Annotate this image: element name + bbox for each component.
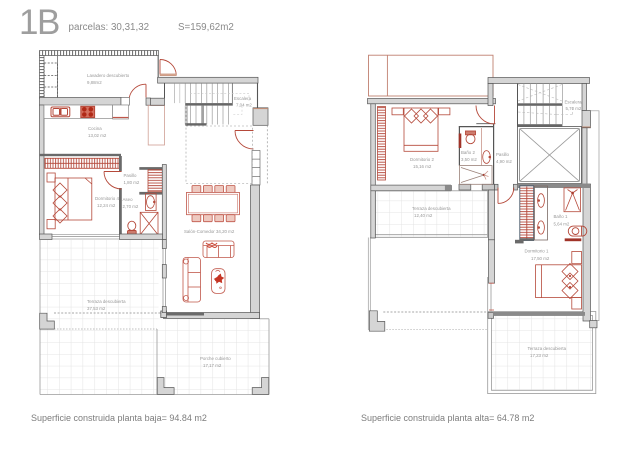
svg-text:Dormitorio 1: Dormitorio 1 <box>525 249 549 254</box>
svg-text:Salón-Comedor 34,20 m2: Salón-Comedor 34,20 m2 <box>184 229 235 234</box>
svg-text:17,17 m2: 17,17 m2 <box>203 363 222 368</box>
svg-text:Porche cubierto: Porche cubierto <box>200 356 231 361</box>
svg-text:3,50 m2: 3,50 m2 <box>461 157 477 162</box>
svg-text:Lavadero descubierto: Lavadero descubierto <box>87 73 130 78</box>
svg-text:13,02 m2: 13,02 m2 <box>88 133 107 138</box>
svg-text:12,40 m2: 12,40 m2 <box>414 213 433 218</box>
svg-text:9,88m2: 9,88m2 <box>87 80 102 85</box>
svg-text:15,16 m2: 15,16 m2 <box>413 164 432 169</box>
svg-text:Pasillo: Pasillo <box>124 173 137 178</box>
svg-text:17,23 m2: 17,23 m2 <box>530 353 549 358</box>
svg-text:7,04 m2: 7,04 m2 <box>236 103 252 108</box>
svg-text:5,64 m2: 5,64 m2 <box>554 222 570 227</box>
svg-text:Baño 2: Baño 2 <box>461 150 475 155</box>
svg-text:12,24 m2: 12,24 m2 <box>97 203 116 208</box>
svg-text:5,70 m2: 5,70 m2 <box>566 106 582 111</box>
svg-text:17,50 m2: 17,50 m2 <box>531 256 550 261</box>
svg-text:37,53 m2: 37,53 m2 <box>87 306 106 311</box>
svg-text:S=159,62m2: S=159,62m2 <box>178 22 234 33</box>
svg-text:2,70 m2: 2,70 m2 <box>123 204 139 209</box>
svg-text:Escalera: Escalera <box>234 96 252 101</box>
svg-text:Pasillo: Pasillo <box>496 152 509 157</box>
svg-text:parcelas: 30,31,32: parcelas: 30,31,32 <box>69 22 150 33</box>
svg-text:Superficie construida planta a: Superficie construida planta alta= 64.78… <box>361 413 534 423</box>
svg-text:4,90 m2: 4,90 m2 <box>496 159 512 164</box>
svg-text:Aseo: Aseo <box>123 197 134 202</box>
svg-text:Dormitorio 4: Dormitorio 4 <box>95 196 119 201</box>
svg-text:Cocina: Cocina <box>88 126 102 131</box>
svg-text:Terraza descubierta: Terraza descubierta <box>412 206 451 211</box>
svg-text:Superficie construida planta b: Superficie construida planta baja= 94.84… <box>31 413 207 423</box>
svg-text:Terraza descubierta: Terraza descubierta <box>528 346 567 351</box>
svg-text:Dormitorio 2: Dormitorio 2 <box>410 157 434 162</box>
svg-text:Baño 1: Baño 1 <box>554 214 568 219</box>
svg-text:1,80 m2: 1,80 m2 <box>124 180 140 185</box>
svg-text:Terraza descubierta: Terraza descubierta <box>87 299 126 304</box>
svg-text:1B: 1B <box>19 3 59 42</box>
svg-text:Escalera: Escalera <box>565 100 583 105</box>
